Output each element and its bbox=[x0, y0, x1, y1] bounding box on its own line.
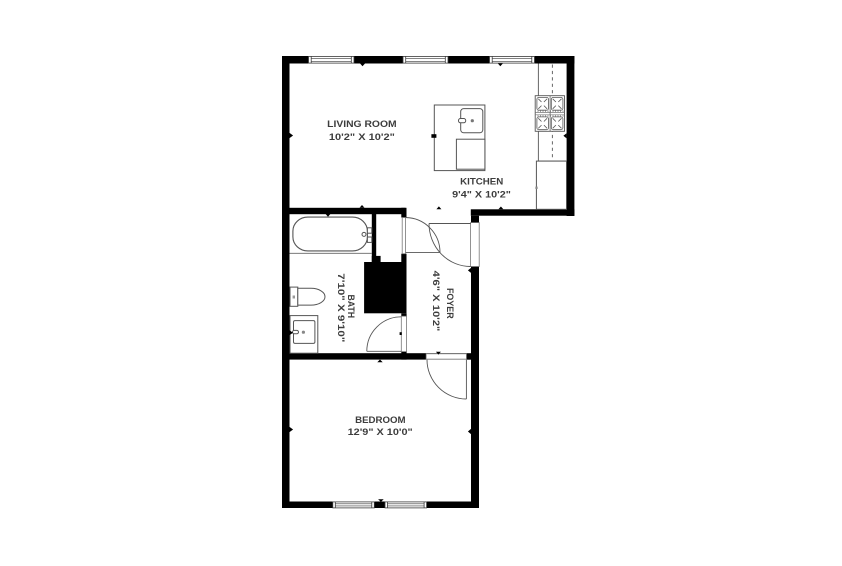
svg-text:LIVING ROOM: LIVING ROOM bbox=[327, 119, 397, 130]
svg-text:4'6" X 10'2": 4'6" X 10'2" bbox=[430, 271, 441, 332]
svg-text:10'2" X 10'2": 10'2" X 10'2" bbox=[329, 132, 395, 143]
svg-text:FOYER: FOYER bbox=[444, 288, 455, 319]
svg-text:BEDROOM: BEDROOM bbox=[355, 415, 406, 426]
svg-text:9'4" X 10'2": 9'4" X 10'2" bbox=[452, 190, 511, 201]
svg-text:BATH: BATH bbox=[345, 295, 356, 319]
svg-text:7'10" X 9'10": 7'10" X 9'10" bbox=[335, 273, 346, 342]
svg-text:12'9" X 10'0": 12'9" X 10'0" bbox=[348, 427, 413, 438]
svg-text:KITCHEN: KITCHEN bbox=[460, 177, 503, 188]
